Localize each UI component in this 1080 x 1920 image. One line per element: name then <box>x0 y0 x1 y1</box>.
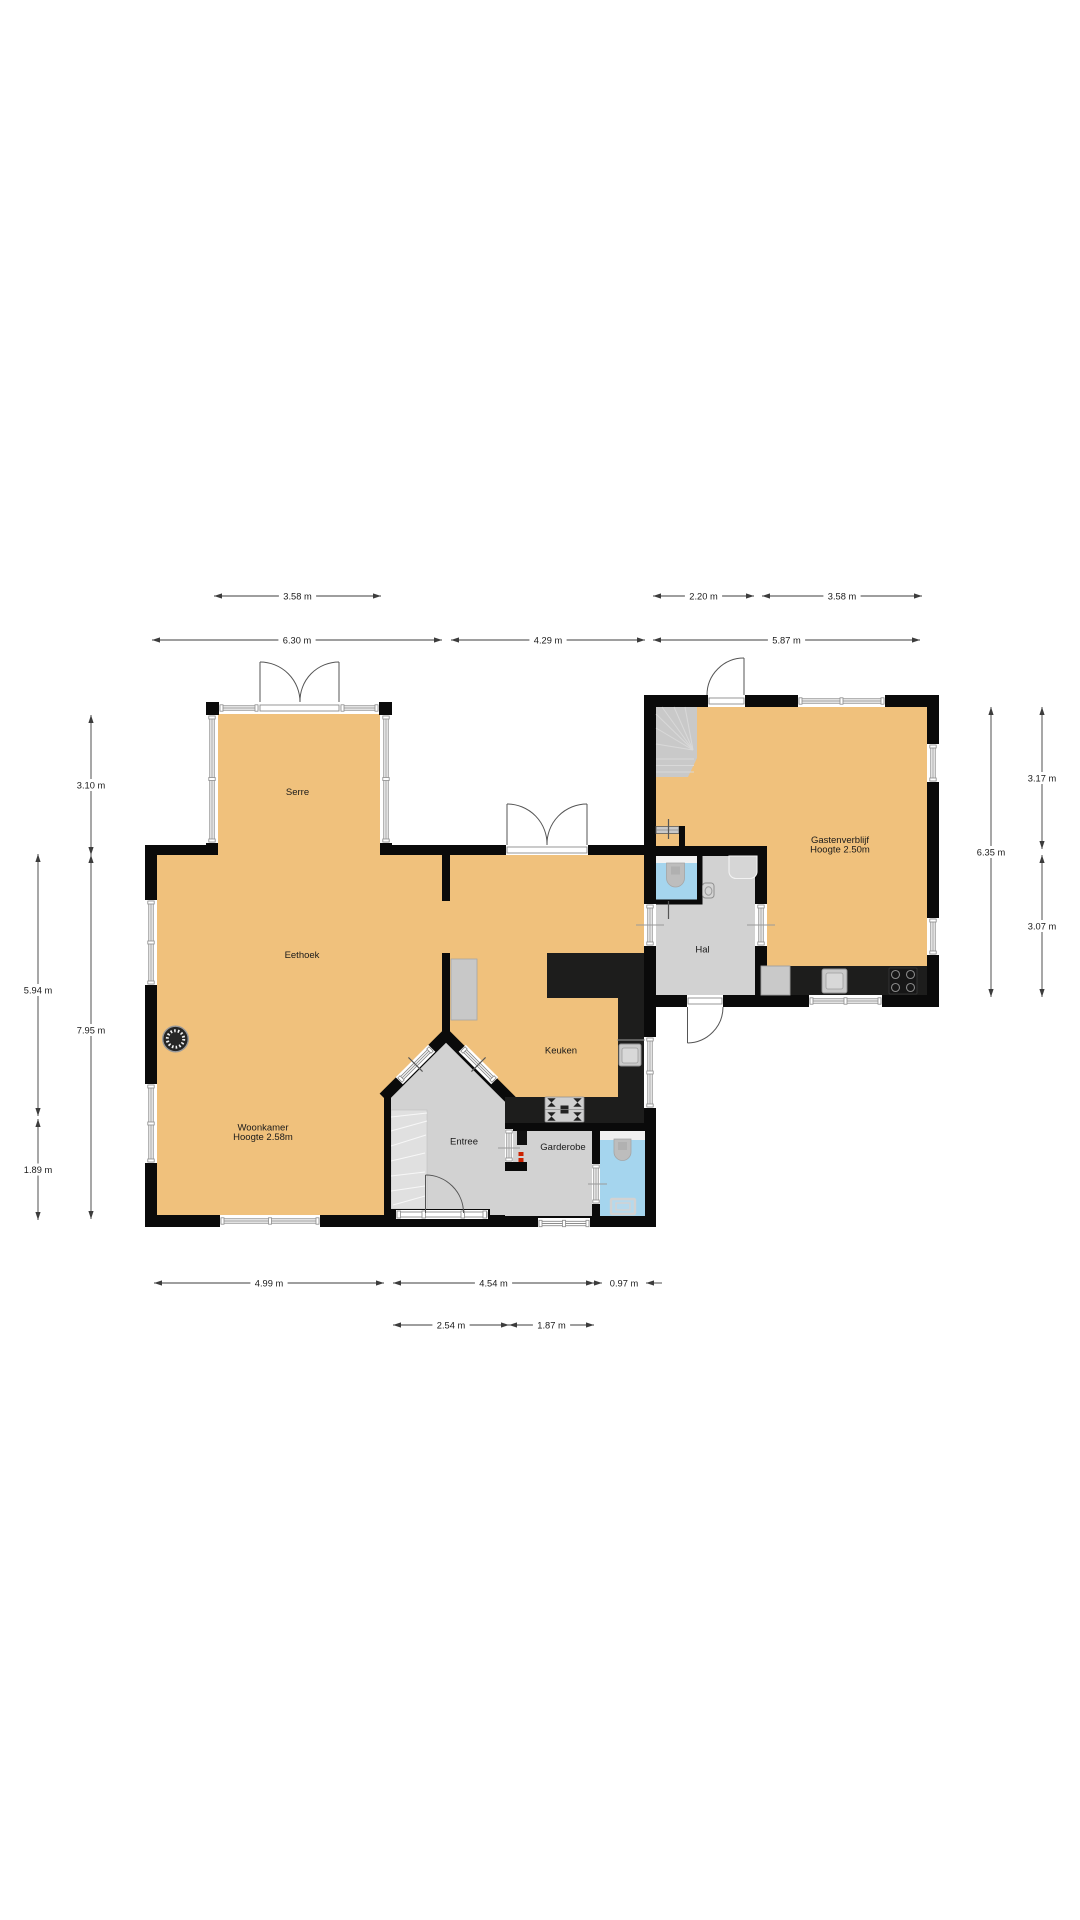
svg-text:0.97 m: 0.97 m <box>610 1278 639 1288</box>
svg-text:3.17 m: 3.17 m <box>1028 773 1057 783</box>
svg-text:Hal: Hal <box>695 945 709 956</box>
svg-text:4.29 m: 4.29 m <box>534 635 563 645</box>
svg-text:2.20 m: 2.20 m <box>689 591 718 601</box>
svg-text:2.54 m: 2.54 m <box>437 1320 466 1330</box>
svg-text:7.95 m: 7.95 m <box>77 1025 106 1035</box>
svg-text:Serre: Serre <box>286 787 309 798</box>
svg-text:Garderobe: Garderobe <box>540 1142 585 1153</box>
svg-text:Eethoek: Eethoek <box>285 950 320 961</box>
svg-text:1.87 m: 1.87 m <box>537 1320 566 1330</box>
svg-text:5.87 m: 5.87 m <box>772 635 801 645</box>
svg-text:Keuken: Keuken <box>545 1046 577 1057</box>
svg-text:3.10 m: 3.10 m <box>77 780 106 790</box>
svg-text:4.99 m: 4.99 m <box>255 1278 284 1288</box>
svg-text:1.89 m: 1.89 m <box>24 1165 53 1175</box>
svg-text:4.54 m: 4.54 m <box>479 1278 508 1288</box>
svg-text:6.30 m: 6.30 m <box>283 635 312 645</box>
svg-text:Hoogte 2.58m: Hoogte 2.58m <box>233 1132 293 1143</box>
svg-text:3.58 m: 3.58 m <box>283 591 312 601</box>
svg-text:Entree: Entree <box>450 1137 478 1148</box>
svg-text:5.94 m: 5.94 m <box>24 985 53 995</box>
svg-text:6.35 m: 6.35 m <box>977 847 1006 857</box>
svg-text:3.07 m: 3.07 m <box>1028 921 1057 931</box>
svg-text:Hoogte 2.50m: Hoogte 2.50m <box>810 844 870 855</box>
svg-text:3.58 m: 3.58 m <box>828 591 857 601</box>
